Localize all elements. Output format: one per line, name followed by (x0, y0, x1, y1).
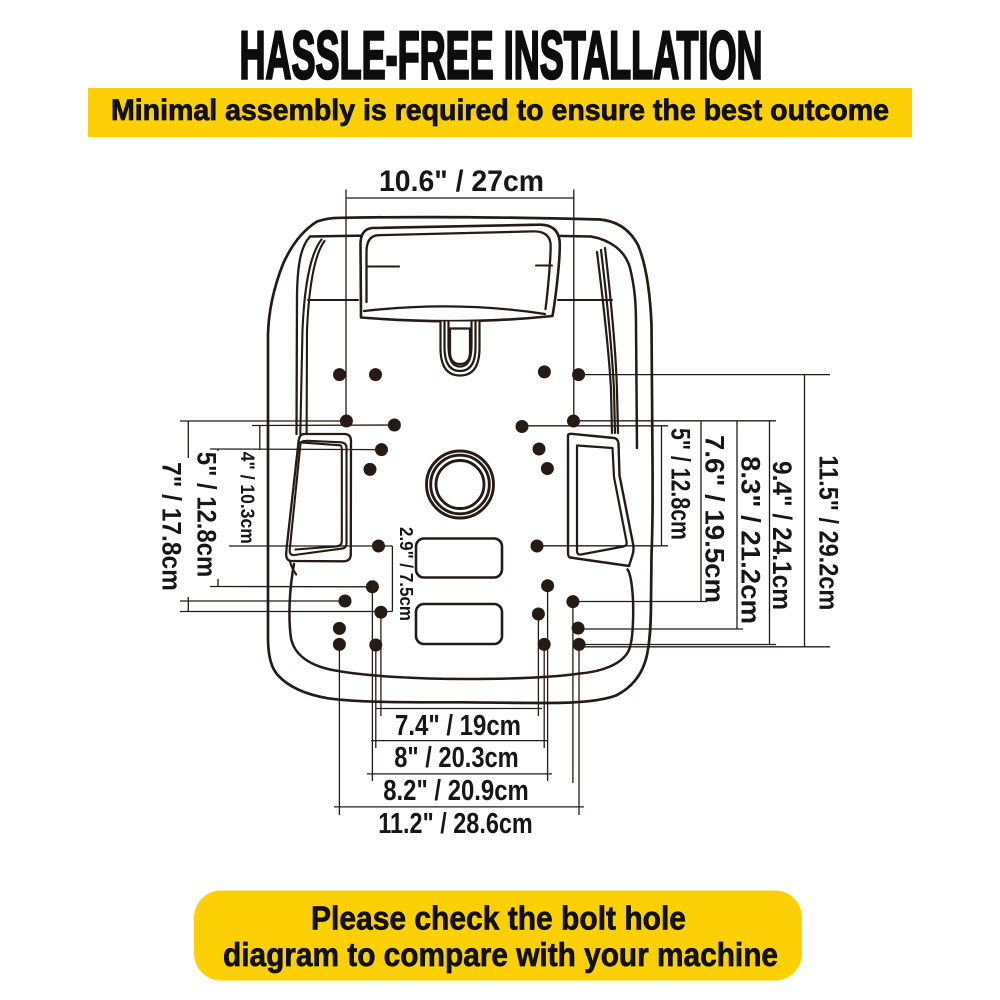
svg-text:11.2" / 28.6cm: 11.2" / 28.6cm (378, 808, 533, 840)
svg-text:9.4" / 24.1cm: 9.4" / 24.1cm (767, 461, 797, 610)
svg-text:2.9" / 7.5cm: 2.9" / 7.5cm (396, 527, 416, 621)
svg-text:Minimal assembly is required t: Minimal assembly is required to ensure t… (111, 94, 889, 127)
svg-text:5" / 12.8cm: 5" / 12.8cm (192, 452, 222, 577)
svg-text:Please check the bolt hole: Please check the bolt hole (311, 900, 686, 937)
svg-text:HASSLE-FREE INSTALLATION: HASSLE-FREE INSTALLATION (240, 18, 763, 94)
svg-text:7.6" / 19.5cm: 7.6" / 19.5cm (699, 435, 729, 603)
svg-text:11.5" / 29.2cm: 11.5" / 29.2cm (813, 455, 843, 610)
svg-text:7" / 17.8cm: 7" / 17.8cm (157, 462, 187, 591)
svg-text:8.2" / 20.9cm: 8.2" / 20.9cm (383, 775, 529, 807)
svg-text:10.6" / 27cm: 10.6" / 27cm (379, 165, 544, 198)
svg-text:8.3" / 21.2cm: 8.3" / 21.2cm (735, 456, 765, 624)
svg-text:5" / 12.8cm: 5" / 12.8cm (665, 428, 695, 540)
svg-text:7.4" / 19cm: 7.4" / 19cm (395, 710, 521, 742)
svg-text:8" / 20.3cm: 8" / 20.3cm (394, 742, 519, 774)
svg-text:diagram to compare with your m: diagram to compare with your machine (223, 936, 778, 973)
svg-text:4" / 10.3cm: 4" / 10.3cm (236, 452, 257, 544)
